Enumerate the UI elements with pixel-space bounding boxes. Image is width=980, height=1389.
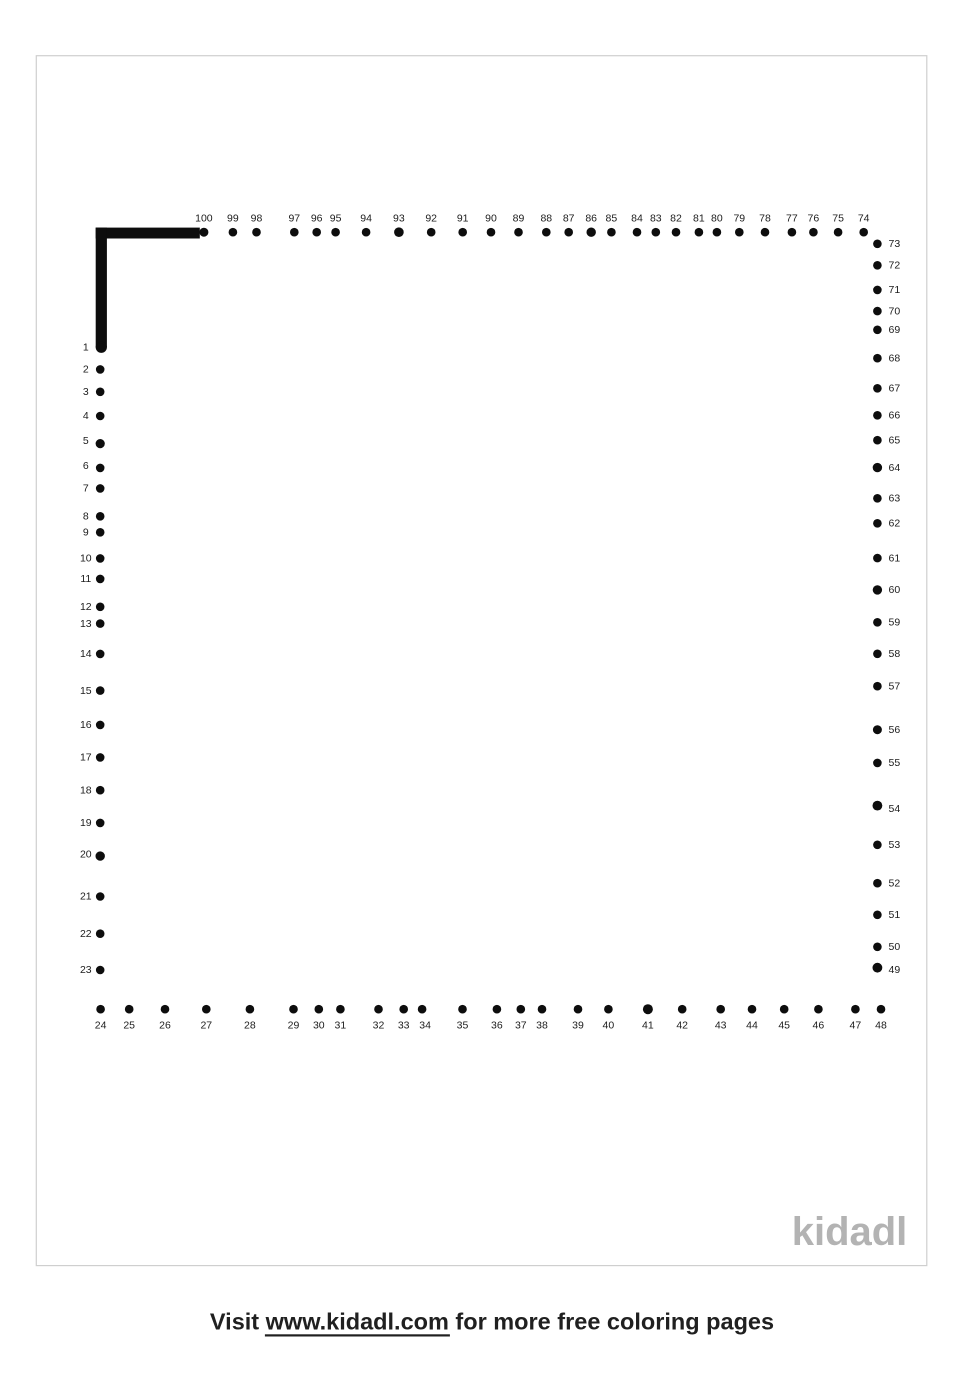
svg-text:30: 30 (313, 1019, 325, 1031)
svg-text:6: 6 (83, 460, 89, 472)
svg-text:100: 100 (195, 213, 213, 225)
svg-text:54: 54 (889, 803, 901, 815)
svg-text:73: 73 (889, 238, 901, 250)
svg-text:91: 91 (457, 213, 469, 225)
svg-text:98: 98 (251, 213, 263, 225)
svg-text:4: 4 (83, 410, 89, 422)
svg-text:53: 53 (889, 839, 901, 851)
svg-text:42: 42 (676, 1019, 688, 1031)
svg-text:48: 48 (875, 1019, 887, 1031)
svg-text:78: 78 (759, 213, 771, 225)
svg-text:32: 32 (373, 1019, 385, 1031)
svg-text:19: 19 (80, 817, 92, 829)
svg-text:40: 40 (603, 1019, 615, 1031)
svg-text:77: 77 (786, 213, 798, 225)
svg-text:5: 5 (83, 435, 89, 447)
svg-text:20: 20 (80, 848, 92, 860)
svg-text:67: 67 (889, 383, 901, 395)
svg-text:47: 47 (850, 1019, 862, 1031)
svg-text:83: 83 (650, 213, 662, 225)
svg-text:86: 86 (585, 213, 597, 225)
svg-text:16: 16 (80, 719, 92, 731)
svg-text:35: 35 (457, 1019, 469, 1031)
svg-text:92: 92 (425, 213, 437, 225)
svg-text:13: 13 (80, 618, 92, 630)
svg-text:66: 66 (889, 410, 901, 422)
svg-text:34: 34 (419, 1019, 431, 1031)
svg-text:8: 8 (83, 511, 89, 523)
svg-text:45: 45 (778, 1019, 790, 1031)
svg-text:74: 74 (858, 213, 870, 225)
svg-text:96: 96 (311, 213, 323, 225)
svg-text:68: 68 (889, 352, 901, 364)
svg-text:75: 75 (832, 213, 844, 225)
svg-text:23: 23 (80, 964, 92, 976)
svg-text:55: 55 (889, 757, 901, 769)
svg-text:51: 51 (889, 909, 901, 921)
svg-text:76: 76 (808, 213, 820, 225)
svg-text:84: 84 (631, 213, 643, 225)
svg-text:50: 50 (889, 941, 901, 953)
svg-text:52: 52 (889, 877, 901, 889)
svg-text:65: 65 (889, 434, 901, 446)
svg-text:1: 1 (83, 342, 89, 354)
svg-text:59: 59 (889, 617, 901, 629)
svg-text:15: 15 (80, 685, 92, 697)
svg-text:46: 46 (813, 1019, 825, 1031)
svg-text:81: 81 (693, 213, 705, 225)
svg-text:79: 79 (733, 213, 745, 225)
svg-text:57: 57 (889, 680, 901, 692)
svg-text:61: 61 (889, 552, 901, 564)
svg-text:89: 89 (513, 213, 525, 225)
svg-text:39: 39 (572, 1019, 584, 1031)
svg-text:27: 27 (200, 1019, 212, 1031)
svg-text:70: 70 (889, 305, 901, 317)
svg-text:25: 25 (123, 1019, 135, 1031)
svg-text:95: 95 (330, 213, 342, 225)
svg-text:7: 7 (83, 483, 89, 495)
svg-text:31: 31 (335, 1019, 347, 1031)
svg-text:41: 41 (642, 1019, 654, 1031)
svg-text:36: 36 (491, 1019, 503, 1031)
svg-text:72: 72 (889, 260, 901, 272)
svg-text:43: 43 (715, 1019, 727, 1031)
svg-text:kidadl: kidadl (792, 1210, 908, 1254)
svg-text:21: 21 (80, 891, 92, 903)
svg-text:49: 49 (889, 964, 901, 976)
svg-text:18: 18 (80, 784, 92, 796)
svg-text:26: 26 (159, 1019, 171, 1031)
svg-text:9: 9 (83, 527, 89, 539)
svg-text:62: 62 (889, 518, 901, 530)
svg-text:60: 60 (889, 584, 901, 596)
svg-text:28: 28 (244, 1019, 256, 1031)
svg-text:94: 94 (360, 213, 372, 225)
svg-text:38: 38 (536, 1019, 548, 1031)
svg-text:69: 69 (889, 324, 901, 336)
svg-text:14: 14 (80, 648, 92, 660)
svg-text:80: 80 (711, 213, 723, 225)
svg-text:22: 22 (80, 928, 92, 940)
svg-text:71: 71 (889, 284, 901, 296)
svg-text:90: 90 (485, 213, 497, 225)
svg-text:12: 12 (80, 601, 92, 613)
svg-text:29: 29 (288, 1019, 300, 1031)
svg-text:87: 87 (563, 213, 575, 225)
svg-text:88: 88 (540, 213, 552, 225)
svg-text:3: 3 (83, 386, 89, 398)
svg-text:85: 85 (606, 213, 618, 225)
svg-text:63: 63 (889, 493, 901, 505)
svg-text:11: 11 (80, 573, 91, 585)
svg-text:Visit www.kidadl.com for more: Visit www.kidadl.com for more free color… (210, 1308, 774, 1334)
svg-text:93: 93 (393, 213, 405, 225)
svg-text:58: 58 (889, 648, 901, 660)
svg-text:10: 10 (80, 553, 92, 565)
svg-text:33: 33 (398, 1019, 410, 1031)
svg-text:82: 82 (670, 213, 682, 225)
svg-text:37: 37 (515, 1019, 527, 1031)
svg-text:24: 24 (95, 1019, 107, 1031)
svg-text:17: 17 (80, 752, 92, 764)
svg-text:44: 44 (746, 1019, 758, 1031)
svg-text:2: 2 (83, 364, 89, 376)
svg-text:97: 97 (288, 213, 300, 225)
svg-text:64: 64 (889, 462, 901, 474)
svg-text:56: 56 (889, 724, 901, 736)
svg-text:99: 99 (227, 213, 239, 225)
